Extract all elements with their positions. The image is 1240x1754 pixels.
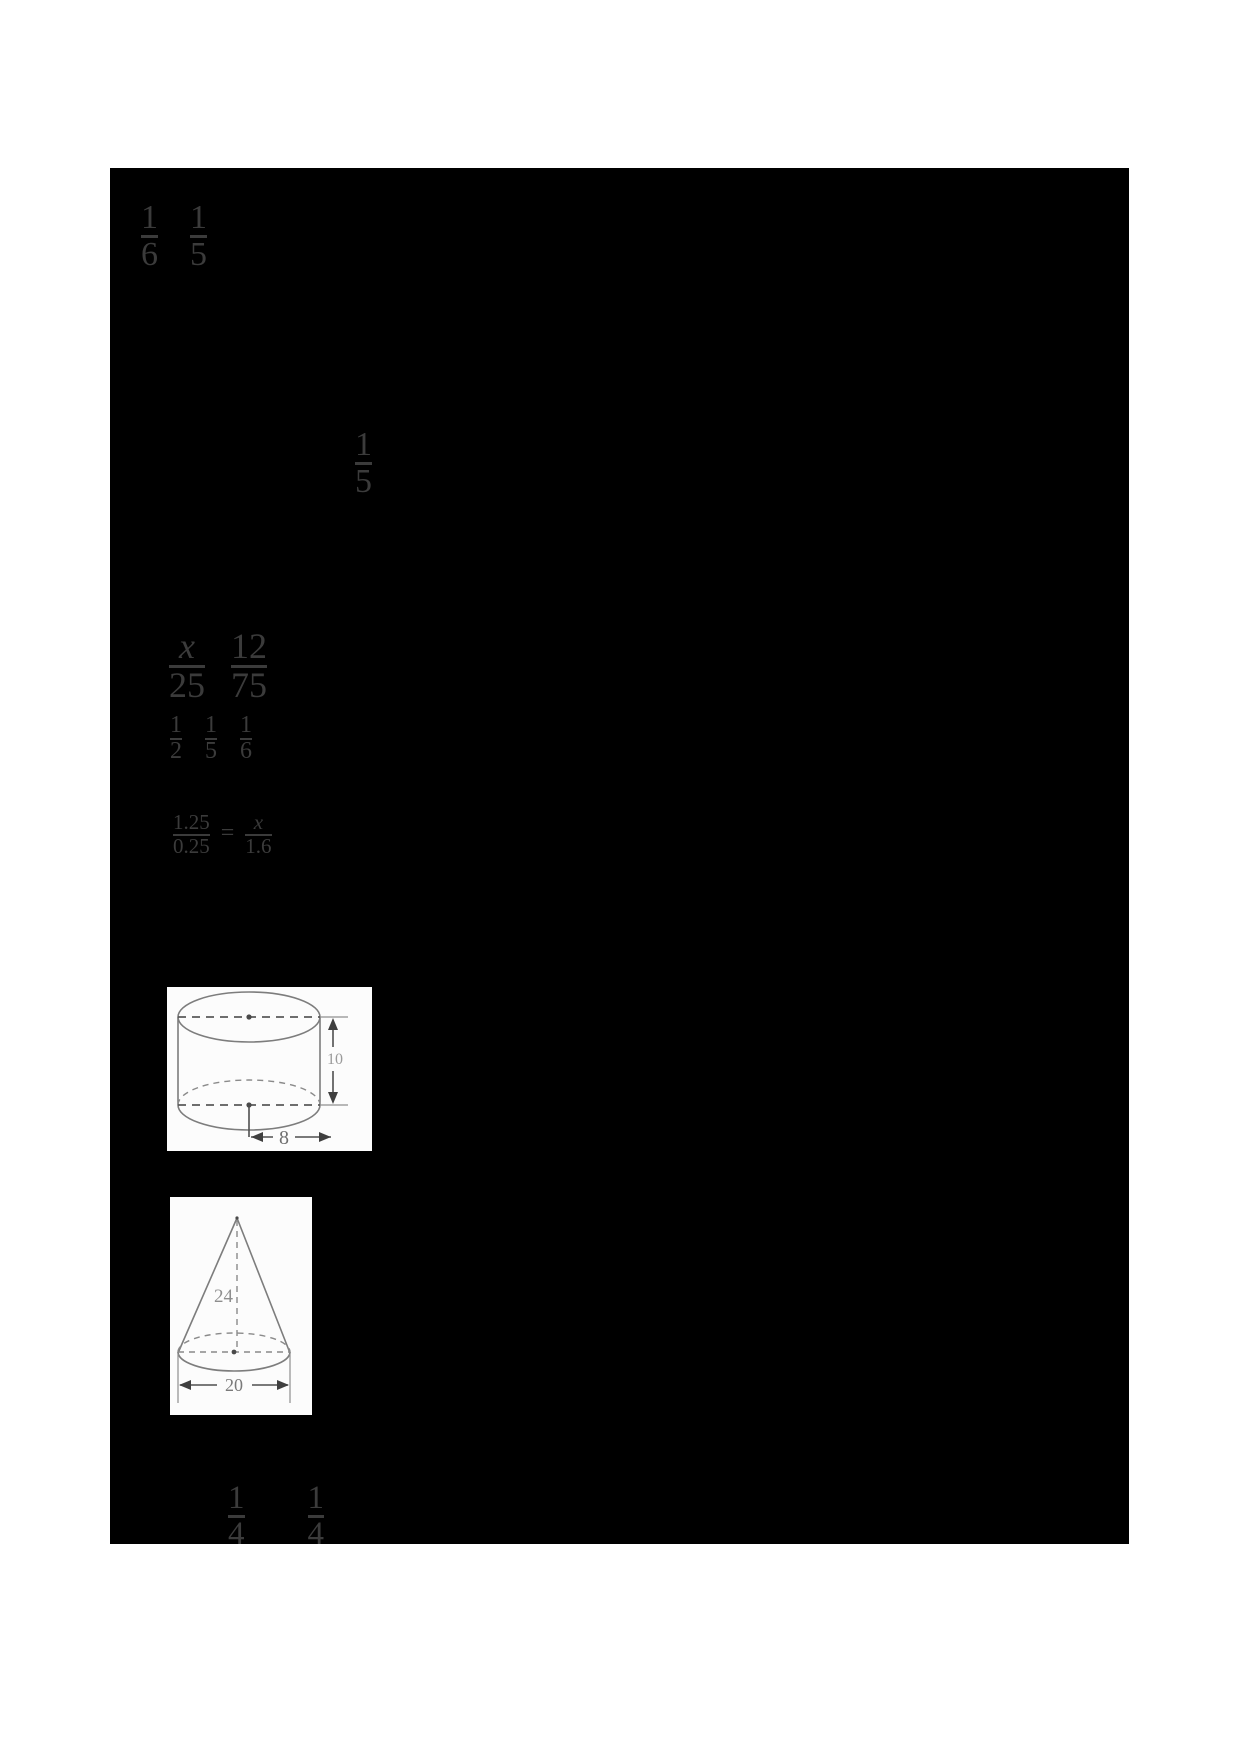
cylinder-radius-label: 8: [279, 1127, 289, 1149]
cone-diameter-label: 20: [225, 1375, 243, 1395]
fraction-numerator: 1: [141, 204, 158, 231]
cone-base-ellipse-back: [178, 1333, 290, 1352]
fraction-numerator: 12: [231, 632, 267, 661]
fraction-one-half: 1 2: [167, 716, 185, 761]
fraction-numerator: x: [254, 814, 263, 831]
decimal-proportion-equation: 1.25 0.25 = x 1.6: [170, 814, 275, 855]
fraction-pair-bottom: 1 4 1 4: [225, 1485, 327, 1548]
cylinder-drawing: 10 8: [167, 987, 372, 1151]
cone-drawing: 24 20: [170, 1197, 312, 1415]
fraction-denominator: 2: [170, 742, 182, 761]
arrow-left-icon: [251, 1132, 263, 1142]
fraction-denominator: 5: [355, 468, 372, 495]
fraction-numerator: 1: [240, 716, 252, 735]
cylinder-bottom-ellipse-back: [178, 1080, 320, 1105]
arrow-down-icon: [328, 1092, 338, 1104]
fraction-numerator: 1.25: [173, 814, 210, 831]
fraction-denominator: 1.6: [245, 838, 271, 855]
arrow-left-icon: [179, 1380, 191, 1390]
cone-height-label: 24: [214, 1286, 234, 1307]
fraction-pair-top: 1 6 1 5: [138, 204, 210, 268]
arrow-right-icon: [319, 1132, 331, 1142]
cylinder-height-label: 10: [327, 1051, 343, 1068]
cylinder-top-center-dot: [246, 1014, 251, 1019]
fraction-denominator: 75: [231, 671, 267, 700]
fraction-single-middle: 1 5: [352, 426, 375, 495]
cylinder-bottom-center-dot: [246, 1102, 251, 1107]
fraction-one-sixth: 1 6: [138, 204, 161, 268]
fraction-denominator: 6: [141, 241, 158, 268]
fraction-12-over-75: 12 75: [228, 632, 270, 700]
arrow-up-icon: [328, 1018, 338, 1030]
fraction-numerator: 1: [190, 204, 207, 231]
redacted-content-block: 1 6 1 5 1 5 x 25: [110, 168, 1129, 1544]
arrow-right-icon: [277, 1380, 289, 1390]
fraction-one-sixth: 1 6: [237, 716, 255, 761]
fraction-denominator: 0.25: [173, 838, 210, 855]
fraction-denominator: 5: [190, 241, 207, 268]
fraction-one-fifth: 1 5: [202, 716, 220, 761]
cylinder-figure: 10 8: [167, 987, 372, 1151]
fraction-denominator: 5: [205, 742, 217, 761]
fraction-one-quarter: 1 4: [225, 1485, 248, 1548]
fraction-1.25-over-0.25: 1.25 0.25: [170, 814, 213, 855]
fraction-numerator: x: [179, 632, 195, 661]
fraction-x-over-1.6: x 1.6: [242, 814, 274, 855]
fraction-numerator: 1: [308, 1485, 325, 1511]
fraction-one-quarter: 1 4: [305, 1485, 328, 1548]
cone-apex-dot: [235, 1216, 238, 1219]
fraction-x-over-25: x 25: [166, 632, 208, 700]
cone-right-slant: [237, 1218, 290, 1353]
fraction-denominator: 4: [308, 1521, 325, 1547]
fraction-numerator: 1: [355, 431, 372, 458]
fraction-numerator: 1: [205, 716, 217, 735]
fraction-one-fifth: 1 5: [352, 431, 375, 495]
fraction-numerator: 1: [228, 1485, 245, 1511]
cone-figure: 24 20: [170, 1197, 312, 1415]
fraction-denominator: 6: [240, 742, 252, 761]
fraction-denominator: 25: [169, 671, 205, 700]
fraction-one-fifth: 1 5: [187, 204, 210, 268]
cone-base-ellipse-front: [178, 1352, 290, 1371]
proportion-fractions: x 25 12 75: [166, 632, 270, 700]
fraction-triple-small: 1 2 1 5 1 6: [167, 716, 255, 761]
fraction-numerator: 1: [170, 716, 182, 735]
equals-sign: =: [221, 821, 235, 847]
fraction-denominator: 4: [228, 1521, 245, 1547]
cone-base-center-dot: [232, 1350, 237, 1355]
document-page: 1 6 1 5 1 5 x 25: [0, 0, 1240, 1754]
